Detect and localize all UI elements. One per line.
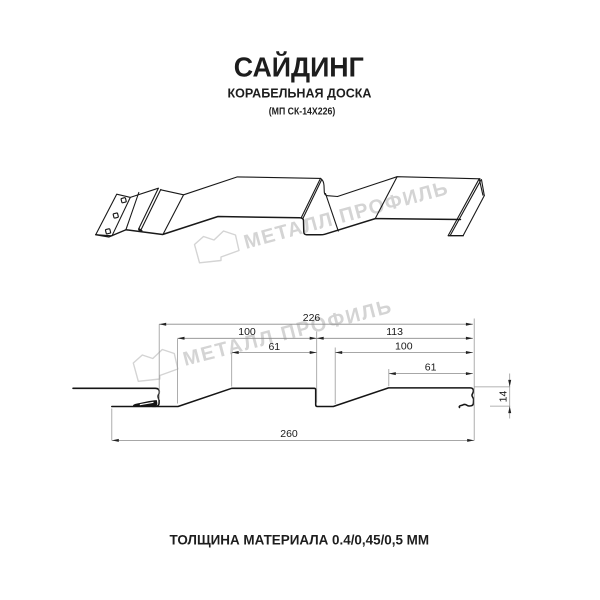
svg-text:61: 61	[425, 361, 437, 373]
svg-text:100: 100	[395, 340, 413, 352]
svg-text:КОРАБЕЛЬНАЯ ДОСКА: КОРАБЕЛЬНАЯ ДОСКА	[228, 85, 372, 100]
svg-text:100: 100	[238, 326, 256, 338]
svg-text:61: 61	[268, 341, 280, 353]
svg-text:226: 226	[303, 312, 321, 324]
svg-text:САЙДИНГ: САЙДИНГ	[234, 50, 364, 82]
svg-text:ТОЛЩИНА МАТЕРИАЛА 0.4/0,45/0,5: ТОЛЩИНА МАТЕРИАЛА 0.4/0,45/0,5 ММ	[170, 533, 430, 549]
svg-text:(МП СК-14Х226): (МП СК-14Х226)	[269, 106, 336, 118]
svg-text:260: 260	[280, 428, 298, 440]
svg-text:14: 14	[498, 391, 510, 403]
svg-text:113: 113	[386, 326, 403, 338]
